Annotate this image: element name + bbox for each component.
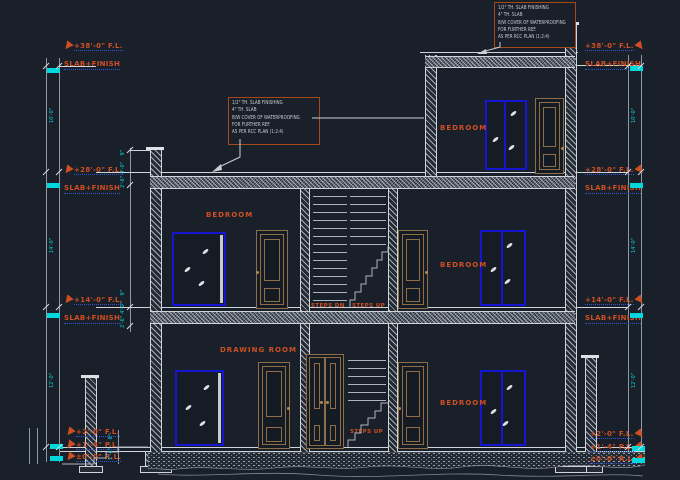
level-label-28-left: +28'-0" F.L. SLAB+FINISH bbox=[64, 166, 123, 194]
door-knob-icon bbox=[256, 271, 259, 274]
boundary-cap-right bbox=[581, 355, 599, 358]
slab-note-box-right: 1/2" TH. SLAB FINISHING 4" TH. SLAB B/W … bbox=[494, 2, 576, 48]
stair-label-steps-up-ground: STEPS UP bbox=[350, 429, 383, 435]
dim-text: 8" bbox=[109, 434, 114, 439]
door-panel-bottom bbox=[266, 427, 282, 442]
level-fl-text: +28'-0" F.L. bbox=[74, 166, 123, 175]
window-handle-icon bbox=[490, 408, 497, 415]
stair-label-steps-up-mid: STEPS UP bbox=[352, 303, 385, 309]
plinth-rl-text: ±0'-0" R.L. bbox=[76, 453, 121, 462]
window-handle-icon bbox=[504, 278, 511, 285]
door-main-double bbox=[306, 354, 344, 449]
dim-block bbox=[47, 183, 60, 188]
door-panel-bottom bbox=[264, 288, 280, 302]
window-handle-icon bbox=[202, 248, 209, 255]
ground-hatch bbox=[148, 452, 645, 480]
level-fl-text: +38'-0" F.L. bbox=[585, 42, 634, 51]
window-handle-icon bbox=[492, 136, 499, 143]
dim-text: 2'-6" bbox=[121, 176, 126, 188]
dim-text: 12'-0" bbox=[50, 373, 55, 388]
door-mid-right bbox=[398, 230, 428, 309]
dim-text: 12'-0" bbox=[632, 373, 637, 388]
level-arrow-icon bbox=[62, 40, 73, 51]
level-slab-text: SLAB+FINISH bbox=[64, 314, 120, 324]
dim-text: 9" bbox=[121, 290, 126, 295]
dim-block bbox=[630, 66, 643, 71]
parapet-cap-left bbox=[146, 147, 164, 150]
window-handle-icon bbox=[506, 242, 513, 249]
door-knob-icon bbox=[287, 407, 290, 410]
note-line: 4" TH. SLAB bbox=[498, 12, 559, 19]
door-panel-top bbox=[330, 363, 336, 409]
plinth-rl-text: ±0'-0" R.L. bbox=[590, 455, 635, 464]
level-label-14-right: +14'-0" F.L. SLAB+FINISH bbox=[585, 296, 644, 324]
window-handle-icon bbox=[203, 384, 210, 391]
level-slab-text: SLAB+FINISH bbox=[64, 184, 120, 194]
note-line: 4" TH. SLAB bbox=[232, 107, 301, 114]
window-handle-icon bbox=[184, 266, 191, 273]
level-arrow-icon bbox=[634, 40, 645, 51]
window-handle-icon bbox=[199, 420, 206, 427]
window-mid-bedroom-left bbox=[172, 232, 226, 306]
door-knob-icon bbox=[398, 407, 401, 410]
level-arrow-icon bbox=[634, 428, 645, 439]
parapet-connector-line bbox=[130, 150, 150, 151]
note-line: AS PER RCC PLAN (1:2:4) bbox=[498, 34, 559, 41]
window-ground-bedroom bbox=[480, 370, 526, 446]
window-sash bbox=[218, 373, 221, 443]
level-arrow-icon bbox=[64, 439, 75, 450]
dim-text: 2'-6" bbox=[121, 316, 126, 328]
door-panel-bottom bbox=[314, 425, 320, 441]
stair-label-steps-dn: STEPS DN bbox=[311, 303, 345, 309]
dim-chain-right-outer-b bbox=[641, 55, 642, 462]
dim-block bbox=[47, 68, 60, 73]
door-drawing-room bbox=[258, 362, 290, 449]
dim-text: 9" bbox=[121, 150, 126, 155]
level-fl-text: +14'-0" F.L. bbox=[585, 296, 634, 305]
level-label-28-right: +28'-0" F.L. SLAB+FINISH bbox=[585, 166, 644, 194]
door-panel-bottom bbox=[543, 154, 556, 167]
window-divider bbox=[501, 232, 503, 304]
dim-chain-left-outer-b bbox=[59, 58, 60, 462]
door-panel-bottom bbox=[406, 288, 420, 302]
wall-left-outer bbox=[150, 150, 162, 452]
window-handle-icon bbox=[198, 280, 205, 287]
window-handle-icon bbox=[508, 144, 515, 151]
level-label-38-left: +38'-0" F.L. SLAB+FINISH bbox=[64, 42, 123, 70]
room-label-drawing-room: DRAWING ROOM bbox=[220, 346, 297, 354]
door-panel-top bbox=[264, 239, 280, 281]
dim-block bbox=[47, 313, 60, 318]
door-ground-right bbox=[398, 362, 428, 449]
window-top-bedroom bbox=[485, 100, 527, 170]
note-line: B/W COVER OF WATERPROOFING bbox=[498, 20, 559, 27]
dim-block bbox=[632, 446, 645, 451]
window-handle-icon bbox=[185, 404, 192, 411]
door-top-bedroom bbox=[535, 98, 564, 174]
door-mid-left bbox=[256, 230, 288, 309]
dim-block bbox=[50, 444, 63, 449]
dim-block bbox=[50, 456, 63, 461]
note-line: AS PER RCC PLAN (1:2:4) bbox=[232, 129, 301, 136]
stair-profile-ground bbox=[348, 403, 388, 447]
door-panel-bottom bbox=[330, 425, 336, 441]
note-line: 1/2" TH. SLAB FINISHING bbox=[498, 5, 559, 12]
stair-profile-mid bbox=[350, 246, 388, 308]
dim-block bbox=[630, 183, 643, 188]
dim-block bbox=[632, 458, 645, 463]
door-panel-bottom bbox=[406, 427, 420, 442]
window-divider bbox=[501, 372, 503, 444]
ground-line-a bbox=[60, 447, 645, 448]
roof-slab bbox=[425, 56, 575, 68]
dim-text: 4'-0" bbox=[121, 162, 126, 174]
room-label-bedroom-ground: BEDROOM bbox=[440, 399, 487, 407]
door-handle-icon bbox=[320, 401, 323, 404]
dim-ext-left-a bbox=[29, 428, 30, 464]
level-arrow-icon bbox=[64, 426, 75, 437]
room-label-bedroom-mid: BEDROOM bbox=[206, 211, 253, 219]
level-fl-text: +28'-0" F.L. bbox=[585, 166, 634, 175]
note-line: B/W COVER OF WATERPROOFING bbox=[232, 115, 301, 122]
second-floor-slab bbox=[150, 176, 575, 189]
stair-treads-down bbox=[313, 196, 347, 306]
window-divider bbox=[504, 102, 506, 168]
note-line: FOR FURTHER REF. bbox=[232, 122, 301, 129]
level-arrow-icon bbox=[62, 164, 73, 175]
roof-finish-line bbox=[420, 52, 578, 53]
dim-text: 14'-0" bbox=[50, 238, 55, 253]
wall-right-outer bbox=[565, 25, 577, 452]
door-handle-icon bbox=[326, 401, 329, 404]
dim-text: 4'-0" bbox=[121, 302, 126, 314]
note-line: FOR FURTHER REF. bbox=[498, 27, 559, 34]
dim-block bbox=[630, 313, 643, 318]
footing-boundary-left bbox=[79, 466, 103, 473]
cad-section-drawing: BEDROOM BEDROOM BEDROOM DRAWING ROOM BED… bbox=[0, 0, 680, 480]
level-arrow-icon bbox=[64, 451, 75, 462]
first-floor-slab bbox=[150, 311, 575, 324]
window-drawing-room bbox=[175, 370, 224, 446]
level-arrow-icon bbox=[634, 294, 645, 305]
dim-chain-left-outer-a bbox=[46, 58, 47, 462]
dim-chain-right-outer-a bbox=[628, 55, 629, 462]
plinth-fl-text: +2'-0" F.L. bbox=[590, 430, 634, 439]
room-label-bedroom-top: BEDROOM bbox=[440, 124, 487, 132]
dim-text: 14'-0" bbox=[632, 238, 637, 253]
dim-text: 1'-4" bbox=[109, 448, 114, 460]
wall-topfloor-left bbox=[425, 55, 437, 177]
level-arrow-icon bbox=[634, 164, 645, 175]
level-fl-text: +38'-0" F.L. bbox=[74, 42, 123, 51]
plinth-pl-text: +1'-4" P.L. bbox=[590, 443, 634, 452]
level-arrow-icon bbox=[62, 294, 73, 305]
window-sash bbox=[220, 235, 223, 303]
door-knob-icon bbox=[561, 147, 564, 150]
note-line: 1/2" TH. SLAB FINISHING bbox=[232, 100, 301, 107]
window-handle-icon bbox=[506, 384, 513, 391]
dim-ext-left-b bbox=[37, 428, 38, 464]
door-panel-top bbox=[406, 371, 420, 417]
door-panel-top bbox=[406, 239, 420, 281]
slab-note-box-left: 1/2" TH. SLAB FINISHING 4" TH. SLAB B/W … bbox=[228, 97, 320, 145]
room-label-bedroom-mid-right: BEDROOM bbox=[440, 261, 487, 269]
level-slab-text: SLAB+FINISH bbox=[64, 60, 120, 70]
dim-text: 10'-0" bbox=[632, 108, 637, 123]
door-panel-top bbox=[543, 107, 556, 147]
plinth-label-fl-right: +2'-0" F.L. bbox=[590, 430, 644, 439]
level-label-14-left: +14'-0" F.L. SLAB+FINISH bbox=[64, 296, 123, 324]
door-panel-top bbox=[266, 371, 282, 417]
door-knob-icon bbox=[425, 271, 428, 274]
window-handle-icon bbox=[510, 110, 517, 117]
stair-treads-upper bbox=[350, 196, 386, 246]
window-handle-icon bbox=[490, 266, 497, 273]
stair-treads-ground bbox=[348, 360, 386, 403]
dim-chain-left-inner bbox=[130, 148, 131, 332]
boundary-cap-left bbox=[81, 375, 99, 378]
dim-text: 10'-0" bbox=[50, 108, 55, 123]
level-fl-text: +14'-0" F.L. bbox=[74, 296, 123, 305]
